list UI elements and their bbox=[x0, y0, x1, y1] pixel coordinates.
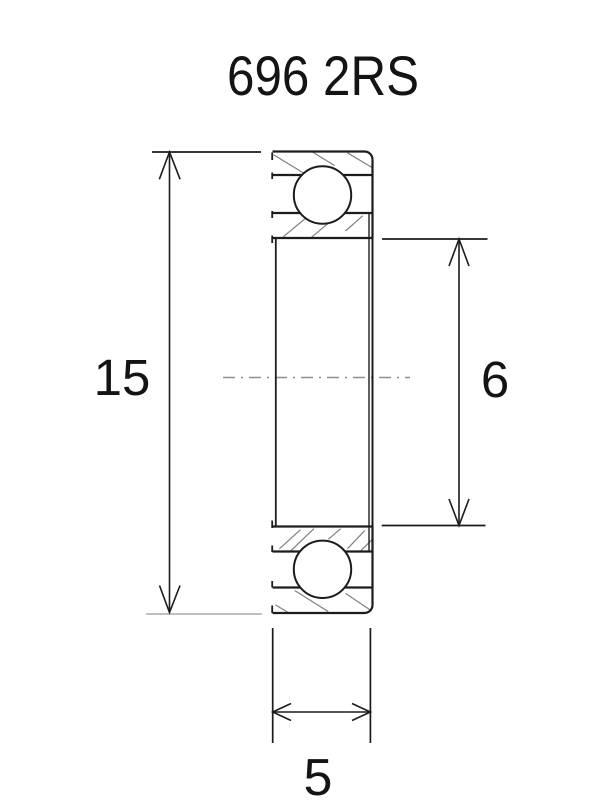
svg-text:15: 15 bbox=[94, 349, 151, 406]
svg-text:696 2RS: 696 2RS bbox=[227, 44, 419, 107]
svg-text:6: 6 bbox=[481, 351, 509, 408]
svg-text:5: 5 bbox=[304, 749, 333, 807]
